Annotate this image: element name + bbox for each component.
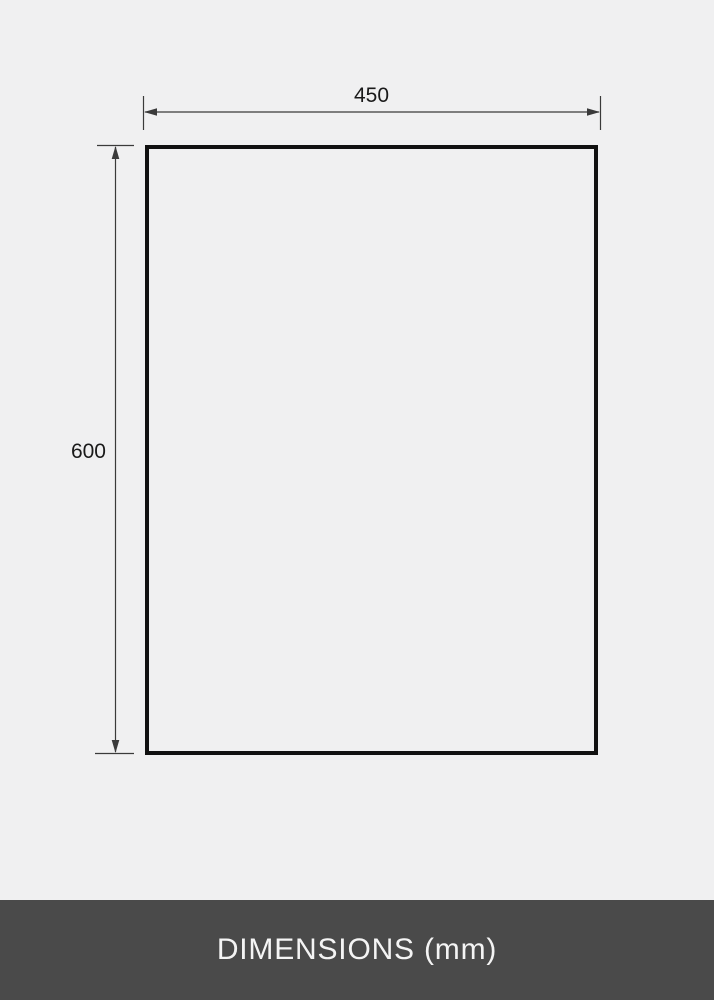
height-dimension-label: 600 [40,441,106,463]
product-outline-rectangle [145,145,598,755]
dimensions-caption: DIMENSIONS (mm) [217,933,497,967]
footer-caption-bar: DIMENSIONS (mm) [0,900,714,1000]
dimension-diagram: 450 600 DIMENSIONS (mm) [0,0,714,1000]
width-dimension-label: 450 [143,85,600,107]
